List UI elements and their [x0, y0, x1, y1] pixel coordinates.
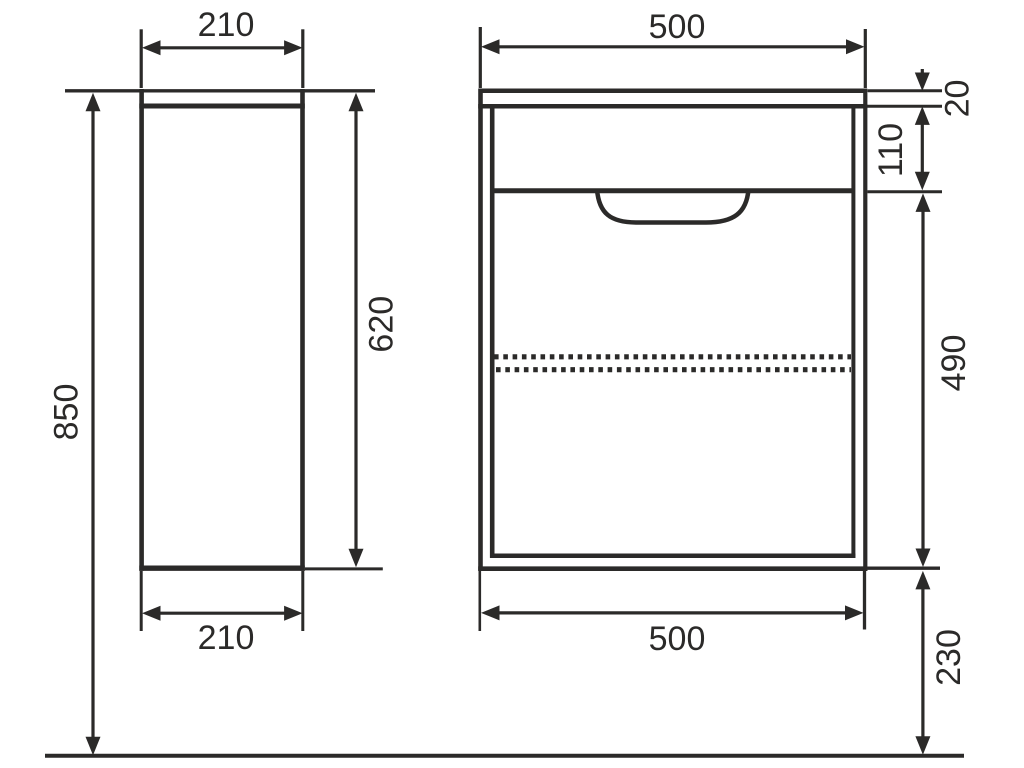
svg-text:210: 210: [198, 619, 255, 657]
svg-text:490: 490: [935, 335, 973, 392]
svg-text:20: 20: [939, 80, 977, 118]
svg-text:500: 500: [649, 620, 706, 658]
svg-text:850: 850: [48, 384, 86, 441]
svg-text:620: 620: [363, 296, 401, 353]
svg-text:500: 500: [649, 8, 706, 46]
svg-text:210: 210: [198, 6, 255, 44]
svg-text:110: 110: [872, 123, 910, 177]
svg-text:230: 230: [930, 629, 968, 686]
